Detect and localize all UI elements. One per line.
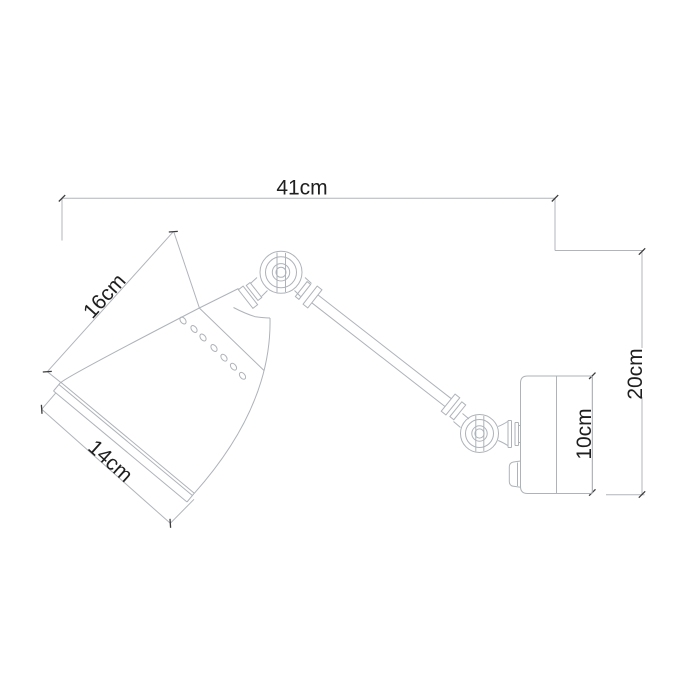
- lower-swivel-joint: [461, 415, 521, 453]
- arm-end-flange-small: [450, 402, 466, 420]
- lower-joint-collar-band-2: [515, 423, 519, 446]
- ext-line-shade-slant-bottom: [47, 372, 61, 383]
- power-switch: [509, 461, 520, 487]
- ext-line-shade-rim-bottom: [170, 499, 194, 523]
- dimension-drawing-page: 41cm 20cm 10cm 16cm 14cm: [0, 0, 700, 700]
- shade-vent-holes: [179, 316, 247, 381]
- ext-line-shade-rim-top: [42, 393, 56, 410]
- lower-joint-band: [476, 416, 484, 452]
- shade-right-silhouette: [194, 318, 270, 493]
- shade-crease-line: [199, 308, 264, 371]
- shade-rim-top-cap: [54, 382, 61, 391]
- dim-label-plate-height: 10cm: [573, 408, 596, 459]
- ext-line-shade-slant-top: [174, 233, 199, 308]
- lower-joint-horn: [498, 422, 507, 446]
- lamp-dimension-drawing: 41cm 20cm 10cm 16cm 14cm: [0, 0, 700, 700]
- upper-joint-right-flange-large: [303, 286, 322, 308]
- lower-joint-collar-band-1: [508, 421, 512, 448]
- arm-end-yoke: [454, 414, 470, 428]
- shade-left-silhouette: [61, 308, 199, 383]
- swing-arm: [312, 295, 469, 428]
- upper-joint-left-flange-large: [238, 286, 257, 308]
- dimension-labels: 41cm 20cm 10cm 16cm 14cm: [79, 177, 647, 488]
- arm-tube-upper-edge: [318, 295, 451, 399]
- dim-label-total-width: 41cm: [276, 177, 327, 200]
- arm-end-flange-large: [441, 394, 460, 415]
- lamp-shade: [54, 289, 271, 503]
- upper-joint-band: [277, 253, 286, 293]
- upper-swivel-joint: [238, 251, 322, 308]
- upper-joint-left-flange-small: [246, 283, 261, 301]
- shade-neck-base-curve: [234, 308, 271, 319]
- dim-label-total-height: 20cm: [624, 348, 647, 399]
- shade-top-edge: [199, 289, 238, 309]
- dim-label-shade-slant: 16cm: [79, 270, 130, 324]
- arm-tube-lower-edge: [312, 303, 445, 407]
